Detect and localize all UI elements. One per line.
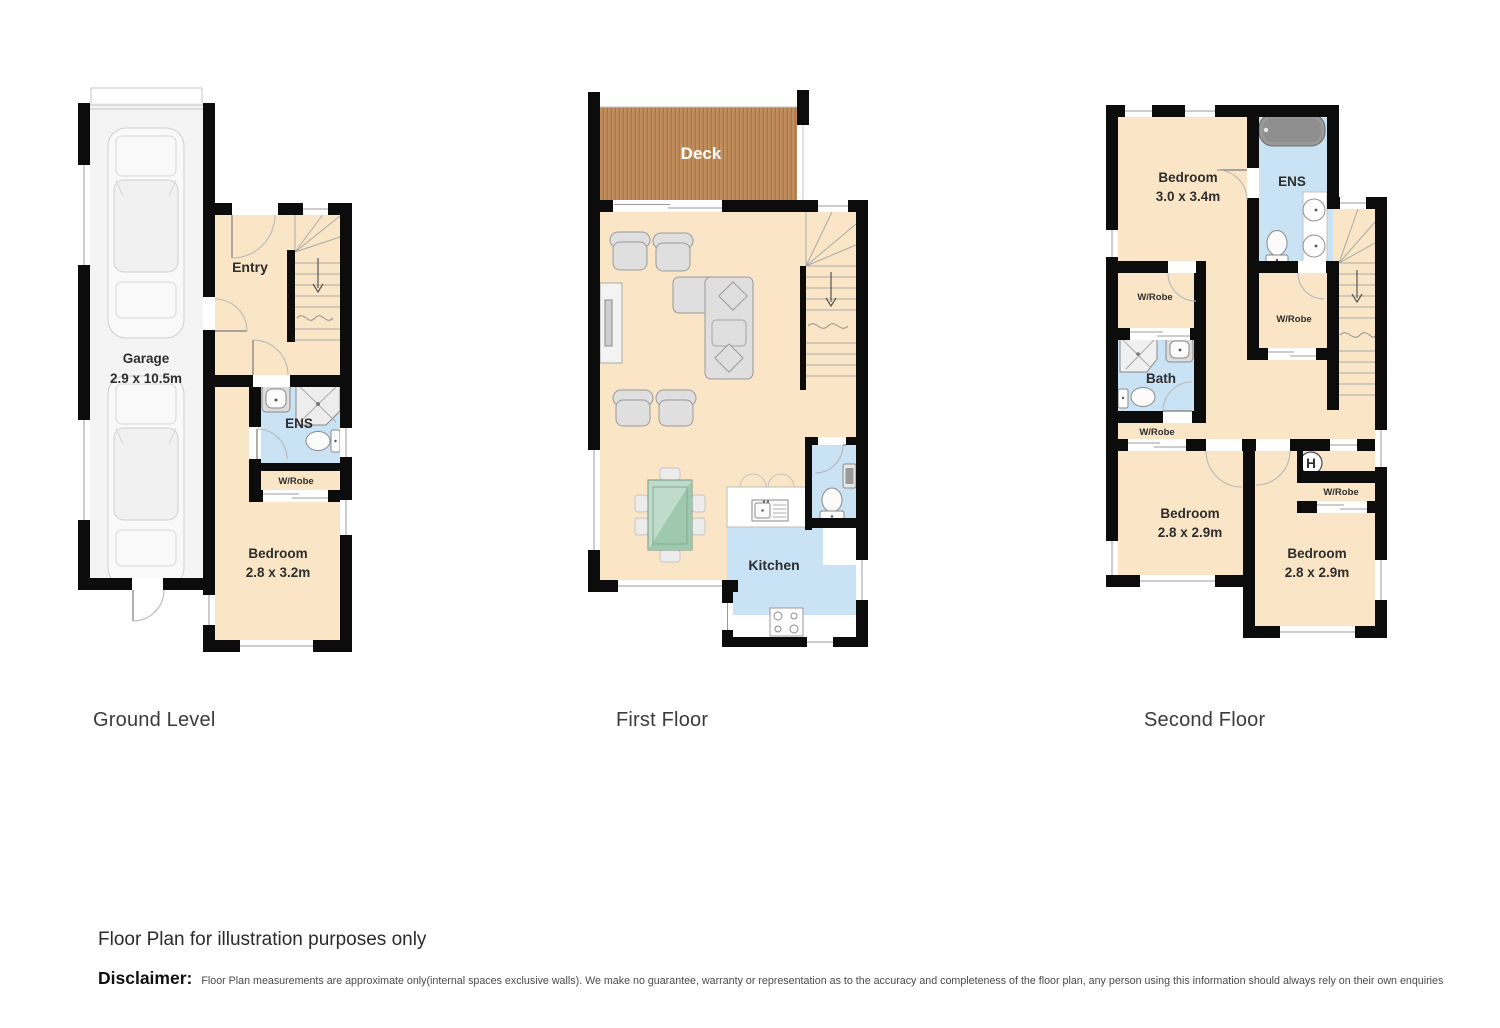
vanity-basin-icon — [1303, 192, 1327, 267]
shower-icon — [1120, 337, 1157, 372]
bedroom2-label: Bedroom — [1160, 506, 1219, 521]
kitchen-label: Kitchen — [748, 557, 799, 573]
entry-label: Entry — [232, 259, 268, 275]
first-floor-title: First Floor — [616, 709, 708, 732]
second-floor-plan: Bedroom 3.0 x 3.4m ENS W/Robe W/Robe Bat… — [1090, 80, 1400, 660]
ground-level-title: Ground Level — [93, 709, 215, 732]
bedroom-dims: 2.8 x 3.2m — [246, 565, 311, 580]
hot-water-label: H — [1306, 456, 1316, 471]
stove-icon — [770, 608, 803, 636]
tv-unit-icon — [600, 283, 622, 363]
bath-label: Bath — [1146, 371, 1176, 386]
disclaimer: Disclaimer: Floor Plan measurements are … — [98, 968, 1443, 989]
car-icon — [108, 128, 184, 338]
floorplan-page: Garage 2.9 x 10.5m Entry ENS W/Robe Bedr… — [0, 0, 1500, 1028]
disclaimer-label: Disclaimer: — [98, 968, 192, 989]
wrobe-small-label: W/Robe — [1139, 427, 1174, 438]
armchair-icon — [656, 390, 696, 426]
toilet-icon — [306, 430, 340, 452]
toilet-icon — [1266, 231, 1288, 266]
ens-label: ENS — [285, 416, 313, 431]
second-floor-title: Second Floor — [1144, 709, 1265, 732]
wrobe-right-label: W/Robe — [1323, 487, 1358, 498]
kitchen-sink-icon — [752, 500, 788, 521]
deck-label: Deck — [681, 144, 722, 163]
illustration-note: Floor Plan for illustration purposes onl… — [98, 929, 426, 951]
bedroom3-dims: 2.8 x 2.9m — [1285, 565, 1350, 580]
armchair-icon — [653, 233, 693, 271]
wrobe-label: W/Robe — [278, 476, 313, 487]
toilet-icon — [1118, 388, 1155, 409]
ens2-label: ENS — [1278, 174, 1306, 189]
bathtub-icon — [1259, 114, 1325, 146]
armchair-icon — [610, 232, 650, 270]
ground-level-plan: Garage 2.9 x 10.5m Entry ENS W/Robe Bedr… — [60, 80, 370, 660]
toilet-icon — [820, 488, 844, 522]
wrobe-center-label: W/Robe — [1276, 314, 1311, 325]
first-floor-plan: Deck Kitchen — [575, 80, 885, 660]
basin-icon — [1166, 338, 1193, 362]
disclaimer-text: Floor Plan measurements are approximate … — [201, 975, 1443, 987]
car-icon — [108, 376, 184, 586]
bedroom1-label: Bedroom — [1158, 170, 1217, 185]
bedroom2-dims: 2.8 x 2.9m — [1158, 525, 1223, 540]
wrobe-left-label: W/Robe — [1137, 292, 1172, 303]
armchair-icon — [613, 390, 653, 426]
basin-icon — [262, 385, 290, 412]
garage-label: Garage — [123, 351, 170, 366]
bedroom-label: Bedroom — [248, 546, 307, 561]
bedroom3-label: Bedroom — [1287, 546, 1346, 561]
bedroom1-dims: 3.0 x 3.4m — [1156, 189, 1221, 204]
garage-dims: 2.9 x 10.5m — [110, 371, 182, 386]
